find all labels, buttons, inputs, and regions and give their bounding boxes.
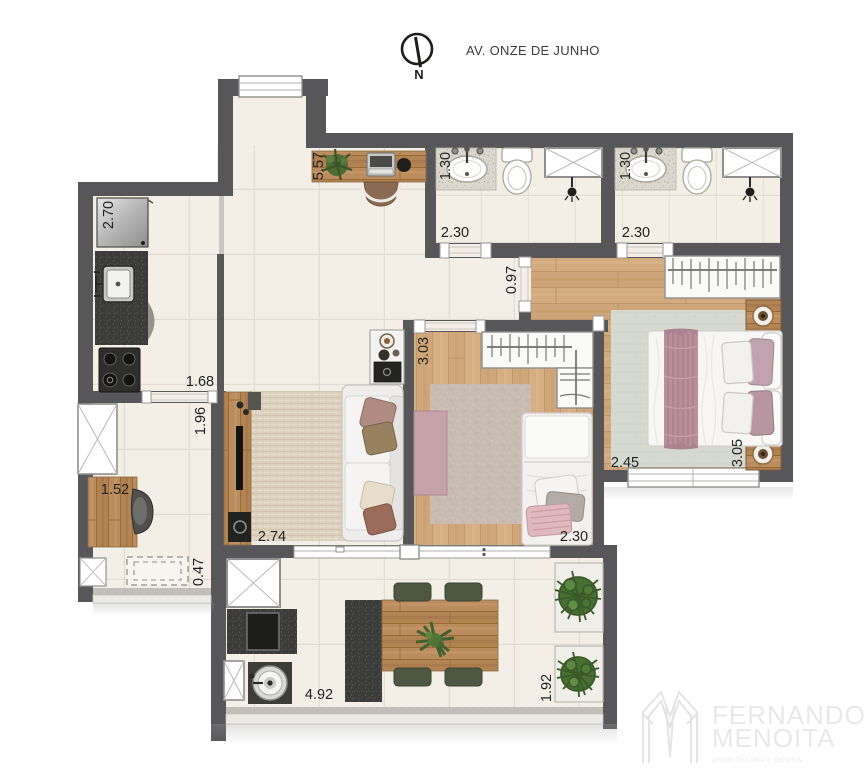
svg-text:ARQUITETURA E DESIGN: ARQUITETURA E DESIGN [712, 757, 803, 764]
svg-text:5.57: 5.57 [311, 152, 327, 180]
svg-text:1.68: 1.68 [186, 374, 214, 390]
svg-text:3.05: 3.05 [730, 439, 746, 467]
svg-text:1.52: 1.52 [101, 482, 129, 498]
svg-text:1.30: 1.30 [618, 152, 634, 180]
svg-text:1.92: 1.92 [539, 674, 555, 702]
svg-text:1.96: 1.96 [193, 407, 209, 435]
svg-text:2.30: 2.30 [622, 225, 650, 241]
svg-text:0.47: 0.47 [191, 558, 207, 586]
svg-text:2.70: 2.70 [101, 201, 117, 229]
svg-text:2.30: 2.30 [441, 225, 469, 241]
svg-text:2.45: 2.45 [611, 455, 639, 471]
svg-text:2.30: 2.30 [560, 529, 588, 545]
svg-text:0.97: 0.97 [504, 266, 520, 294]
svg-text:MENOITA: MENOITA [712, 723, 836, 753]
svg-text:4.92: 4.92 [305, 687, 333, 703]
svg-text:3.03: 3.03 [416, 337, 432, 365]
svg-text:N: N [414, 67, 423, 82]
svg-text:2.74: 2.74 [258, 529, 286, 545]
svg-text:1.30: 1.30 [438, 152, 454, 180]
svg-text:AV. ONZE DE JUNHO: AV. ONZE DE JUNHO [466, 43, 600, 58]
